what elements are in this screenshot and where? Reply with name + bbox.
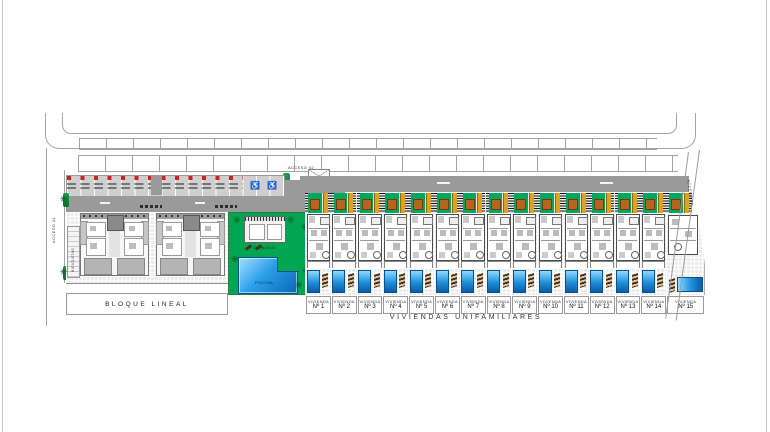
porch xyxy=(592,216,598,223)
wall xyxy=(644,240,663,241)
stair-core xyxy=(107,215,124,231)
house-footprint xyxy=(384,214,408,261)
steps-icon xyxy=(399,273,405,288)
furniture xyxy=(310,252,316,258)
wall xyxy=(670,228,696,229)
furniture xyxy=(542,252,548,258)
furniture xyxy=(414,230,420,236)
wall xyxy=(334,240,353,241)
house-label: VIVIENDANº 14 xyxy=(641,296,666,314)
house-label-number: Nº 14 xyxy=(642,304,665,311)
house-footprint xyxy=(436,214,460,261)
furniture xyxy=(619,252,625,258)
palm-tree-icon: ✳ xyxy=(60,268,68,277)
porch xyxy=(438,216,444,223)
porch xyxy=(412,216,418,223)
planter-icon xyxy=(439,199,449,210)
private-garden xyxy=(331,268,357,295)
garage-pergola-strip xyxy=(382,193,408,213)
house-footprint xyxy=(539,214,563,261)
furniture xyxy=(372,230,378,236)
garage-pergola-strip xyxy=(511,193,537,213)
apartment-building-1 xyxy=(80,213,149,276)
house-label: VIVIENDANº 15 xyxy=(667,296,704,314)
planter-icon xyxy=(465,199,475,210)
garage-pergola-strip xyxy=(589,193,615,213)
private-garden xyxy=(460,268,486,295)
wall xyxy=(618,228,637,229)
private-garden xyxy=(382,268,408,295)
furniture xyxy=(205,226,211,231)
furniture xyxy=(548,243,555,250)
furniture xyxy=(440,230,446,236)
wall xyxy=(618,240,637,241)
house-footprint xyxy=(332,214,356,261)
planter-icon xyxy=(620,199,630,210)
house-label: VIVIENDANº 4 xyxy=(383,296,408,314)
room xyxy=(500,217,510,225)
sheet-border-right xyxy=(766,0,767,432)
garage-pergola-strip xyxy=(331,193,357,213)
room xyxy=(603,217,613,225)
table-icon xyxy=(373,251,381,259)
furniture xyxy=(599,243,606,250)
furniture xyxy=(475,230,481,236)
table-icon xyxy=(657,251,665,259)
furniture xyxy=(367,243,374,250)
furniture xyxy=(594,230,600,236)
furniture xyxy=(604,230,610,236)
steps-icon xyxy=(451,273,457,288)
bloque-lineal-label: BLOQUE LINEAL xyxy=(105,301,189,308)
private-garden xyxy=(615,268,641,295)
furniture xyxy=(129,243,136,249)
private-pool xyxy=(513,270,526,293)
planter-icon xyxy=(568,199,578,210)
porch xyxy=(360,216,366,223)
table-icon xyxy=(528,251,536,259)
wall xyxy=(309,228,328,229)
top-road-sidewalk xyxy=(79,138,657,150)
wall xyxy=(592,228,611,229)
table-icon xyxy=(554,251,562,259)
house-floor-plan xyxy=(589,213,615,268)
room xyxy=(552,217,562,225)
house-floor-plan xyxy=(563,213,589,268)
wall xyxy=(309,240,328,241)
bicicletas-label: BICICLETAS xyxy=(71,248,75,272)
house-unit xyxy=(434,193,461,295)
house-unit xyxy=(563,193,590,295)
furniture xyxy=(311,230,317,236)
furniture xyxy=(335,252,341,258)
table-icon xyxy=(476,251,484,259)
private-garden xyxy=(511,268,537,295)
wall xyxy=(438,240,457,241)
garage-pergola-strip xyxy=(615,193,641,213)
house-footprint xyxy=(487,214,511,261)
house-unit xyxy=(537,193,564,295)
furniture xyxy=(336,230,342,236)
furniture xyxy=(439,252,445,258)
planter-icon xyxy=(362,199,372,210)
house-unit xyxy=(408,193,435,295)
house-label: VIVIENDANº 10 xyxy=(538,296,563,314)
house-unit xyxy=(357,193,384,295)
viviendas-unifamiliares-title: VIVIENDAS UNIFAMILIARES xyxy=(346,314,586,321)
furniture xyxy=(362,230,368,236)
steps-icon xyxy=(348,273,354,288)
palm-tree-icon: ✳ xyxy=(233,216,241,225)
house-floor-plan xyxy=(615,213,641,268)
room xyxy=(320,217,330,225)
garage-pergola-strip xyxy=(640,193,666,213)
house-footprint xyxy=(668,215,698,255)
room xyxy=(655,217,665,225)
furniture xyxy=(527,230,533,236)
house-floor-plan xyxy=(305,213,331,268)
house-unit xyxy=(640,193,667,295)
house-floor-plan xyxy=(331,213,357,268)
lane-dash xyxy=(437,182,450,184)
furniture xyxy=(166,243,173,249)
palm-tree-icon: ✳ xyxy=(231,255,239,264)
west-road-outer-curb xyxy=(46,148,47,326)
furniture xyxy=(496,243,503,250)
private-garden xyxy=(589,268,615,295)
house-label: VIVIENDANº 1 xyxy=(306,296,331,314)
furniture xyxy=(517,230,523,236)
furniture xyxy=(651,243,658,250)
wall xyxy=(412,228,431,229)
lane-dash xyxy=(100,202,110,204)
wall xyxy=(463,240,482,241)
wall xyxy=(489,240,508,241)
room xyxy=(86,222,106,237)
furniture xyxy=(620,230,626,236)
gym-room xyxy=(267,224,282,240)
furniture xyxy=(316,243,323,250)
wall xyxy=(463,228,482,229)
garage-pergola-strip xyxy=(357,193,383,213)
house-label: VIVIENDANº 11 xyxy=(564,296,589,314)
furniture xyxy=(393,243,400,250)
wheelchair-icon: ♿ xyxy=(250,182,260,190)
private-pool xyxy=(410,270,423,293)
room xyxy=(345,217,355,225)
private-pool xyxy=(436,270,449,293)
planter-icon xyxy=(516,199,526,210)
furniture xyxy=(579,230,585,236)
house-floor-plan xyxy=(511,213,537,268)
site-plan-sheet: ACCESO 01 ACCESO 02 ♿ ♿ xyxy=(0,0,770,432)
wall xyxy=(670,240,696,241)
garage-pergola-strip xyxy=(408,193,434,213)
house-footprint xyxy=(616,214,640,261)
wall xyxy=(567,228,586,229)
furniture xyxy=(341,243,348,250)
table-icon xyxy=(322,251,330,259)
furniture xyxy=(419,243,426,250)
house-floor-plan xyxy=(537,213,563,268)
wall xyxy=(644,228,663,229)
porch xyxy=(567,216,573,223)
wall xyxy=(438,228,457,229)
table-icon xyxy=(451,251,459,259)
house-footprint xyxy=(410,214,434,261)
steps-icon xyxy=(477,273,483,288)
furniture xyxy=(464,252,470,258)
house-footprint xyxy=(642,214,666,261)
room xyxy=(474,217,484,225)
planter-icon xyxy=(413,199,423,210)
private-pool xyxy=(487,270,500,293)
house-label-number: Nº 11 xyxy=(565,304,588,311)
furniture xyxy=(593,252,599,258)
terrace xyxy=(160,258,188,275)
parking-driveway-gap xyxy=(151,175,162,195)
steps-icon xyxy=(528,273,534,288)
room xyxy=(526,217,536,225)
house-label: VIVIENDANº 12 xyxy=(590,296,615,314)
gym-building xyxy=(244,216,286,243)
palm-tree-icon: ✳ xyxy=(295,281,303,290)
furniture xyxy=(656,230,662,236)
furniture xyxy=(625,243,632,250)
gym-roof-edge xyxy=(245,217,285,221)
porch xyxy=(334,216,340,223)
furniture xyxy=(465,230,471,236)
house-floor-plan xyxy=(357,213,383,268)
palm-tree-icon: ✳ xyxy=(60,195,68,204)
gym-room xyxy=(249,224,265,240)
communal-pool: PISCINA xyxy=(238,257,298,294)
house-footprint xyxy=(565,214,589,261)
terrace xyxy=(193,258,221,275)
furniture xyxy=(553,230,559,236)
house-label-number: Nº 4 xyxy=(384,304,407,311)
furniture xyxy=(522,243,529,250)
porch xyxy=(489,216,495,223)
steps-icon xyxy=(554,273,560,288)
steps-icon xyxy=(606,273,612,288)
room xyxy=(578,217,588,225)
house-label: VIVIENDANº 2 xyxy=(332,296,357,314)
room xyxy=(397,217,407,225)
furniture xyxy=(361,252,367,258)
house-unit xyxy=(511,193,538,295)
private-garden xyxy=(305,268,331,295)
furniture xyxy=(90,243,97,249)
house-label: VIVIENDANº 5 xyxy=(409,296,434,314)
house-label-number: Nº 13 xyxy=(617,304,640,311)
furniture xyxy=(569,230,575,236)
table-icon xyxy=(502,251,510,259)
lane-dash xyxy=(600,182,613,184)
house-unit xyxy=(305,193,332,295)
private-pool xyxy=(461,270,474,293)
house-label-number: Nº 3 xyxy=(359,304,382,311)
private-pool xyxy=(358,270,371,293)
wall xyxy=(592,240,611,241)
garage-pergola-strip xyxy=(434,193,460,213)
wall xyxy=(515,228,534,229)
furniture xyxy=(574,243,581,250)
porch xyxy=(309,216,315,223)
stair-core xyxy=(183,215,200,231)
garage-pergola-strip xyxy=(486,193,512,213)
room xyxy=(162,222,182,237)
private-pool xyxy=(616,270,629,293)
private-garden xyxy=(408,268,434,295)
porch xyxy=(541,216,547,223)
steps-icon xyxy=(580,273,586,288)
table-icon xyxy=(425,251,433,259)
parking-strip: ♿ ♿ xyxy=(66,175,285,197)
garage-pergola-strip xyxy=(537,193,563,213)
furniture xyxy=(568,252,574,258)
house-label: VIVIENDANº 6 xyxy=(435,296,460,314)
house-label-number: Nº 8 xyxy=(488,304,511,311)
house-label-number: Nº 2 xyxy=(333,304,356,311)
house-label-number: Nº 9 xyxy=(513,304,536,311)
private-pool xyxy=(590,270,603,293)
lane-dash xyxy=(195,202,205,204)
furniture xyxy=(470,243,477,250)
private-pool xyxy=(332,270,345,293)
planter-icon xyxy=(491,199,501,210)
private-pool xyxy=(384,270,397,293)
piscina-label: PISCINA xyxy=(255,280,273,285)
furniture xyxy=(205,243,212,249)
table-icon xyxy=(631,251,639,259)
sheet-border-left xyxy=(2,0,3,432)
planter-icon xyxy=(336,199,346,210)
table-icon xyxy=(399,251,407,259)
steps-icon xyxy=(503,273,509,288)
house-label: VIVIENDANº 8 xyxy=(487,296,512,314)
pool-notch xyxy=(277,257,299,272)
furniture xyxy=(491,230,497,236)
site-north-sidewalk xyxy=(78,155,678,172)
wall xyxy=(360,240,379,241)
private-pool xyxy=(307,270,320,293)
house-unit xyxy=(460,193,487,295)
private-pool xyxy=(642,270,655,293)
house-footprint xyxy=(513,214,537,261)
private-garden xyxy=(563,268,589,295)
street-marking xyxy=(140,205,162,208)
house-unit xyxy=(331,193,358,295)
furniture xyxy=(413,252,419,258)
palm-tree-icon: ✳ xyxy=(287,216,295,225)
house-label-number: Nº 5 xyxy=(410,304,433,311)
furniture xyxy=(516,252,522,258)
communal-garden: GIMNASIO PISCINA ✳ ✳ ✳ ✳ ✳ ✳ xyxy=(228,212,308,295)
porch xyxy=(515,216,521,223)
terrace xyxy=(117,258,145,275)
private-pool xyxy=(565,270,578,293)
porch xyxy=(644,216,650,223)
furniture xyxy=(166,226,172,231)
furniture xyxy=(321,230,327,236)
private-garden xyxy=(537,268,563,295)
corridor xyxy=(185,231,196,257)
planter-icon xyxy=(645,199,655,210)
room xyxy=(629,217,639,225)
house-floor-plan xyxy=(434,213,460,268)
table-icon xyxy=(347,251,355,259)
wall xyxy=(386,240,405,241)
furniture xyxy=(646,230,652,236)
private-garden xyxy=(486,268,512,295)
wall xyxy=(489,228,508,229)
house-floor-plan xyxy=(460,213,486,268)
steps-icon xyxy=(632,273,638,288)
wall xyxy=(541,240,560,241)
porch xyxy=(463,216,469,223)
furniture xyxy=(424,230,430,236)
wall xyxy=(515,240,534,241)
house-label: VIVIENDANº 3 xyxy=(358,296,383,314)
bloque-lineal-caption-box: BLOQUE LINEAL xyxy=(66,293,228,315)
furniture xyxy=(501,230,507,236)
planter-icon xyxy=(542,199,552,210)
wheelchair-icon: ♿ xyxy=(267,182,277,190)
internal-street-east xyxy=(300,176,689,192)
house-label-number: Nº 12 xyxy=(591,304,614,311)
acceso-01-label: ACCESO 01 xyxy=(51,217,56,243)
corridor xyxy=(109,231,120,257)
shrub xyxy=(245,244,252,250)
garage-pergola-strip xyxy=(563,193,589,213)
furniture xyxy=(90,226,96,231)
private-garden xyxy=(357,268,383,295)
porch xyxy=(618,216,624,223)
garage-pergola-strip xyxy=(305,193,331,213)
private-garden xyxy=(434,268,460,295)
apartment-building-2 xyxy=(156,213,225,276)
house-floor-plan xyxy=(408,213,434,268)
furniture xyxy=(490,252,496,258)
house-label-number: Nº 15 xyxy=(668,304,703,311)
house-floor-plan xyxy=(486,213,512,268)
garage-pergola-strip xyxy=(460,193,486,213)
house-footprint xyxy=(461,214,485,261)
house-footprint xyxy=(358,214,382,261)
furniture xyxy=(129,226,135,231)
house-label: VIVIENDANº 7 xyxy=(461,296,486,314)
house-label-number: Nº 10 xyxy=(539,304,562,311)
house-label-number: Nº 1 xyxy=(307,304,330,311)
house-label: VIVIENDANº 13 xyxy=(616,296,641,314)
house-label: VIVIENDANº 9 xyxy=(512,296,537,314)
house-label-number: Nº 7 xyxy=(462,304,485,311)
furniture xyxy=(388,230,394,236)
private-pool xyxy=(539,270,552,293)
steps-icon xyxy=(322,273,328,288)
steps-icon xyxy=(657,273,663,288)
house-label-number: Nº 6 xyxy=(436,304,459,311)
table-icon xyxy=(605,251,613,259)
wall xyxy=(386,228,405,229)
street-marking xyxy=(215,205,237,208)
planter-icon xyxy=(310,199,320,210)
house-footprint xyxy=(307,214,331,261)
table-icon xyxy=(580,251,588,259)
wall xyxy=(360,228,379,229)
house-unit xyxy=(589,193,616,295)
